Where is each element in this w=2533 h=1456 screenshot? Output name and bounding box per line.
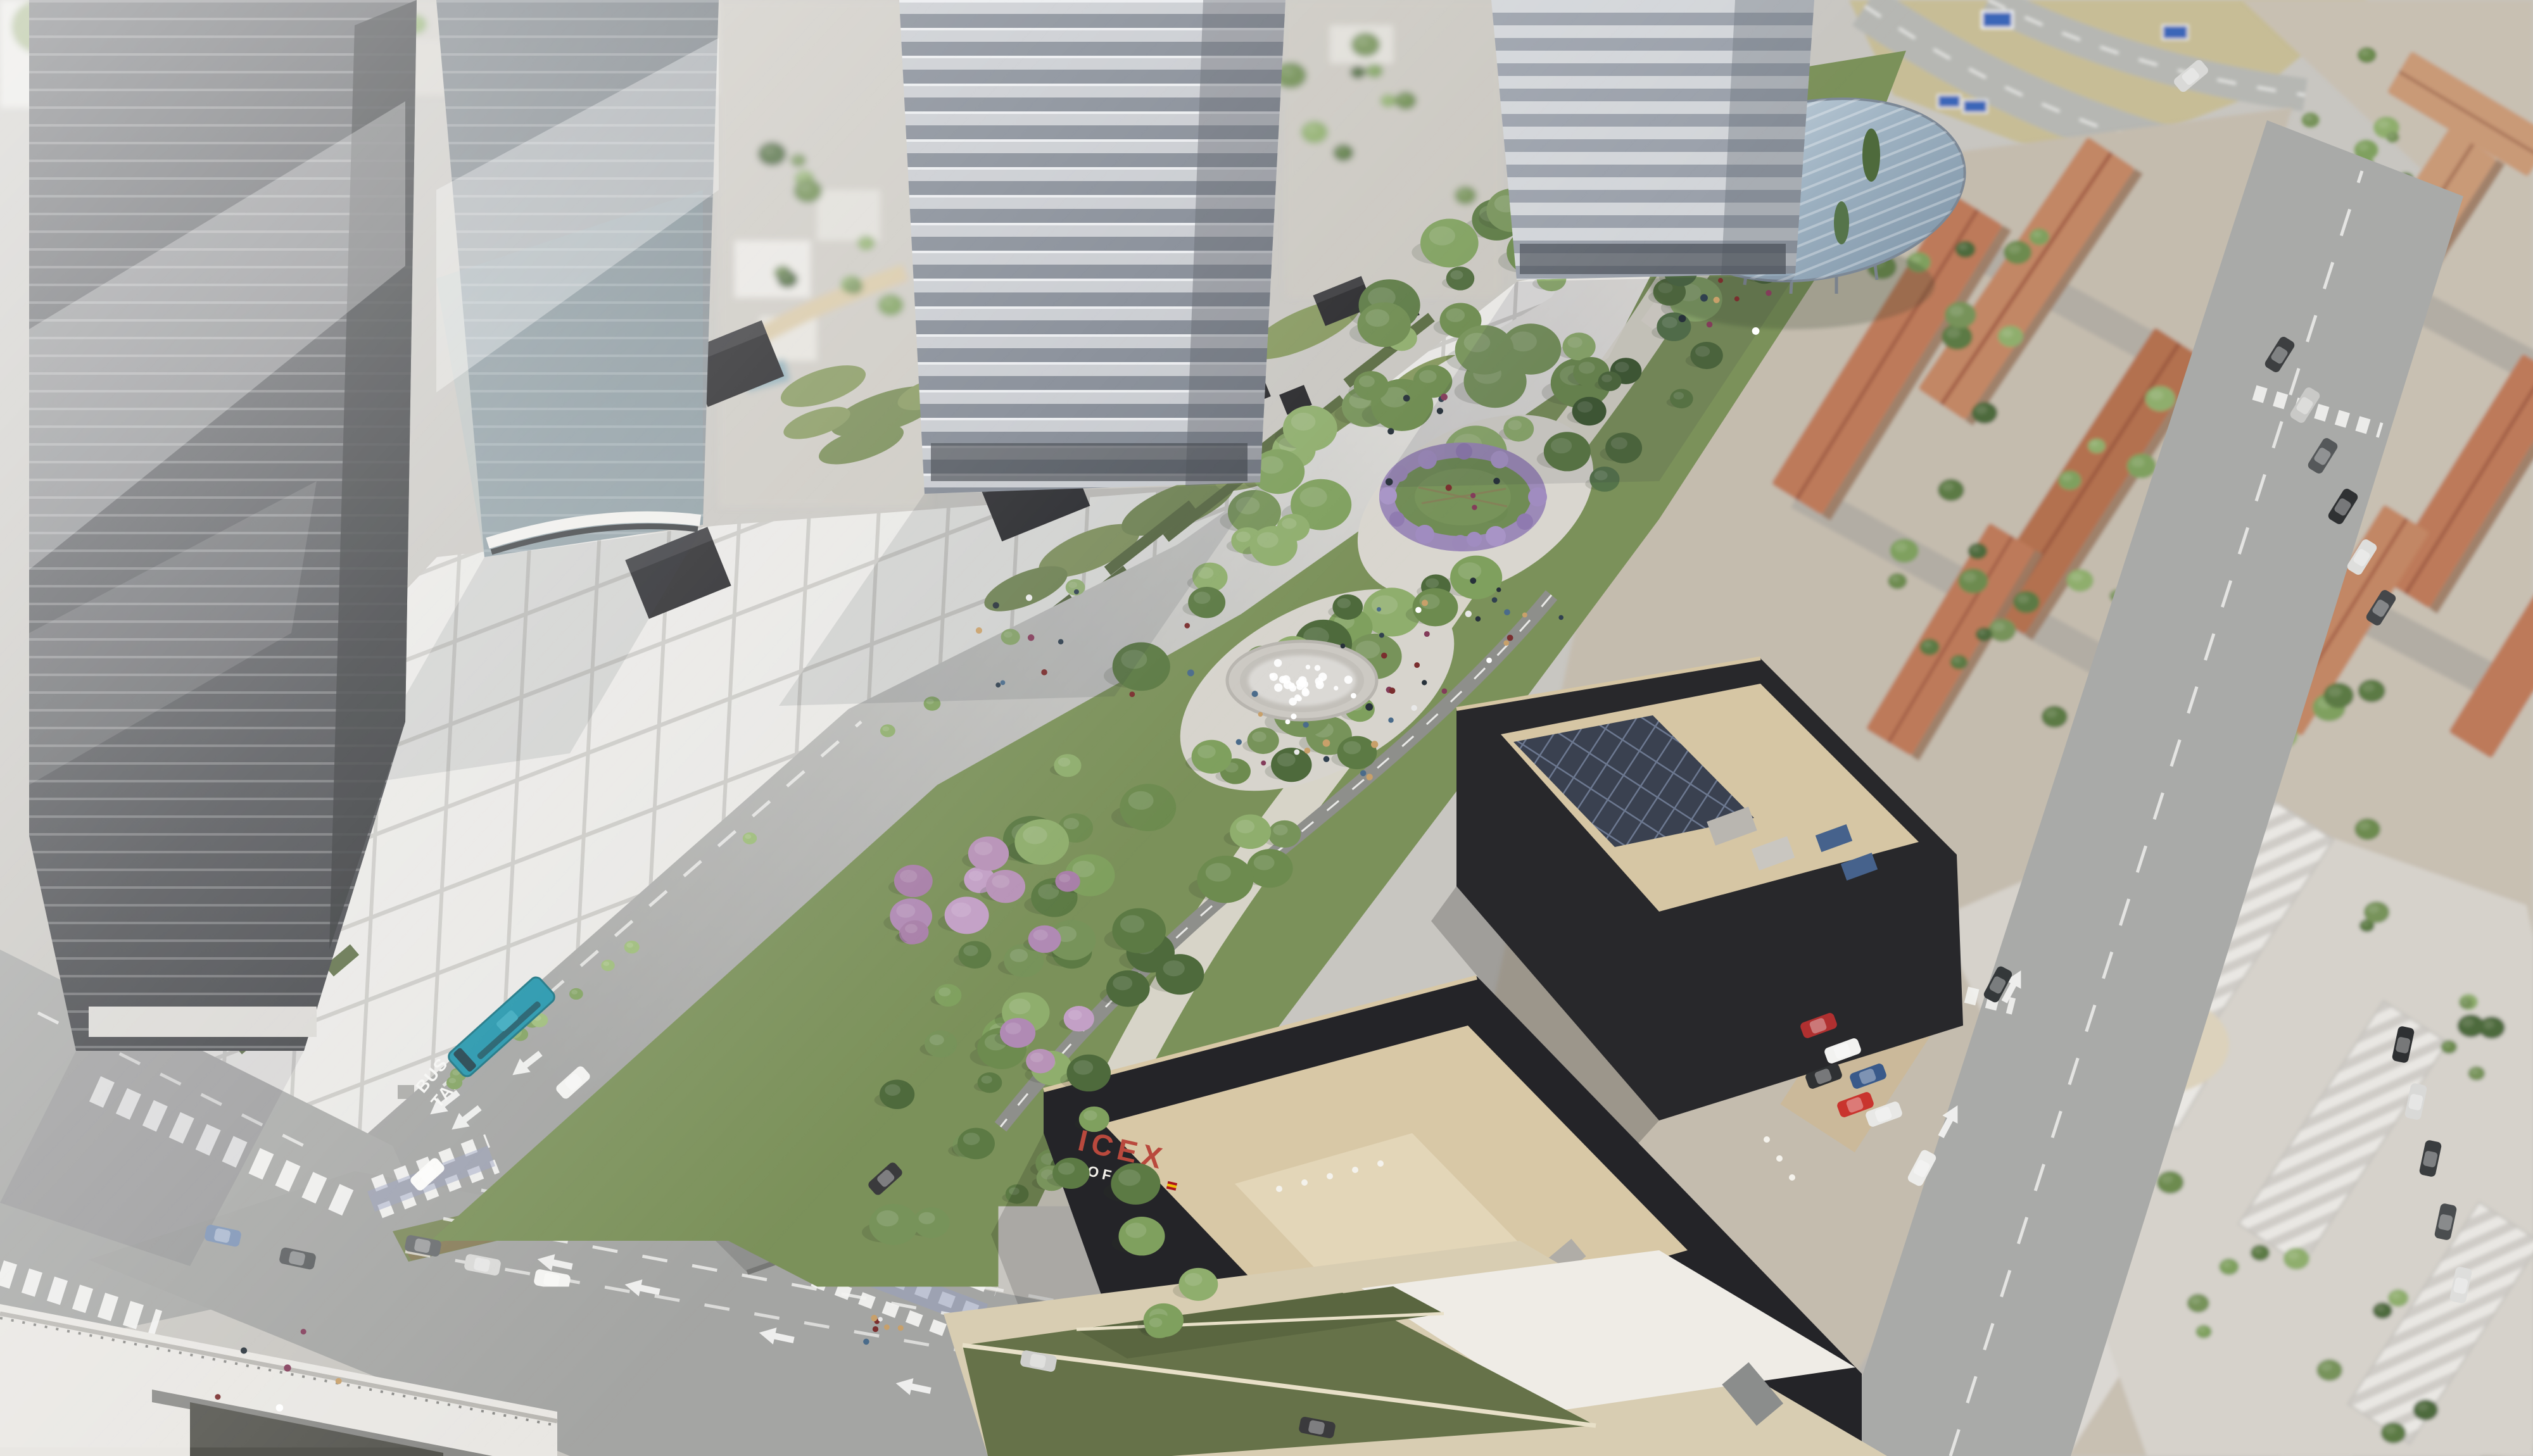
aerial-rendering: TUNEL TAXI BUS: [0, 0, 2533, 1456]
sunlight-glare-overlay: [0, 0, 2533, 1456]
